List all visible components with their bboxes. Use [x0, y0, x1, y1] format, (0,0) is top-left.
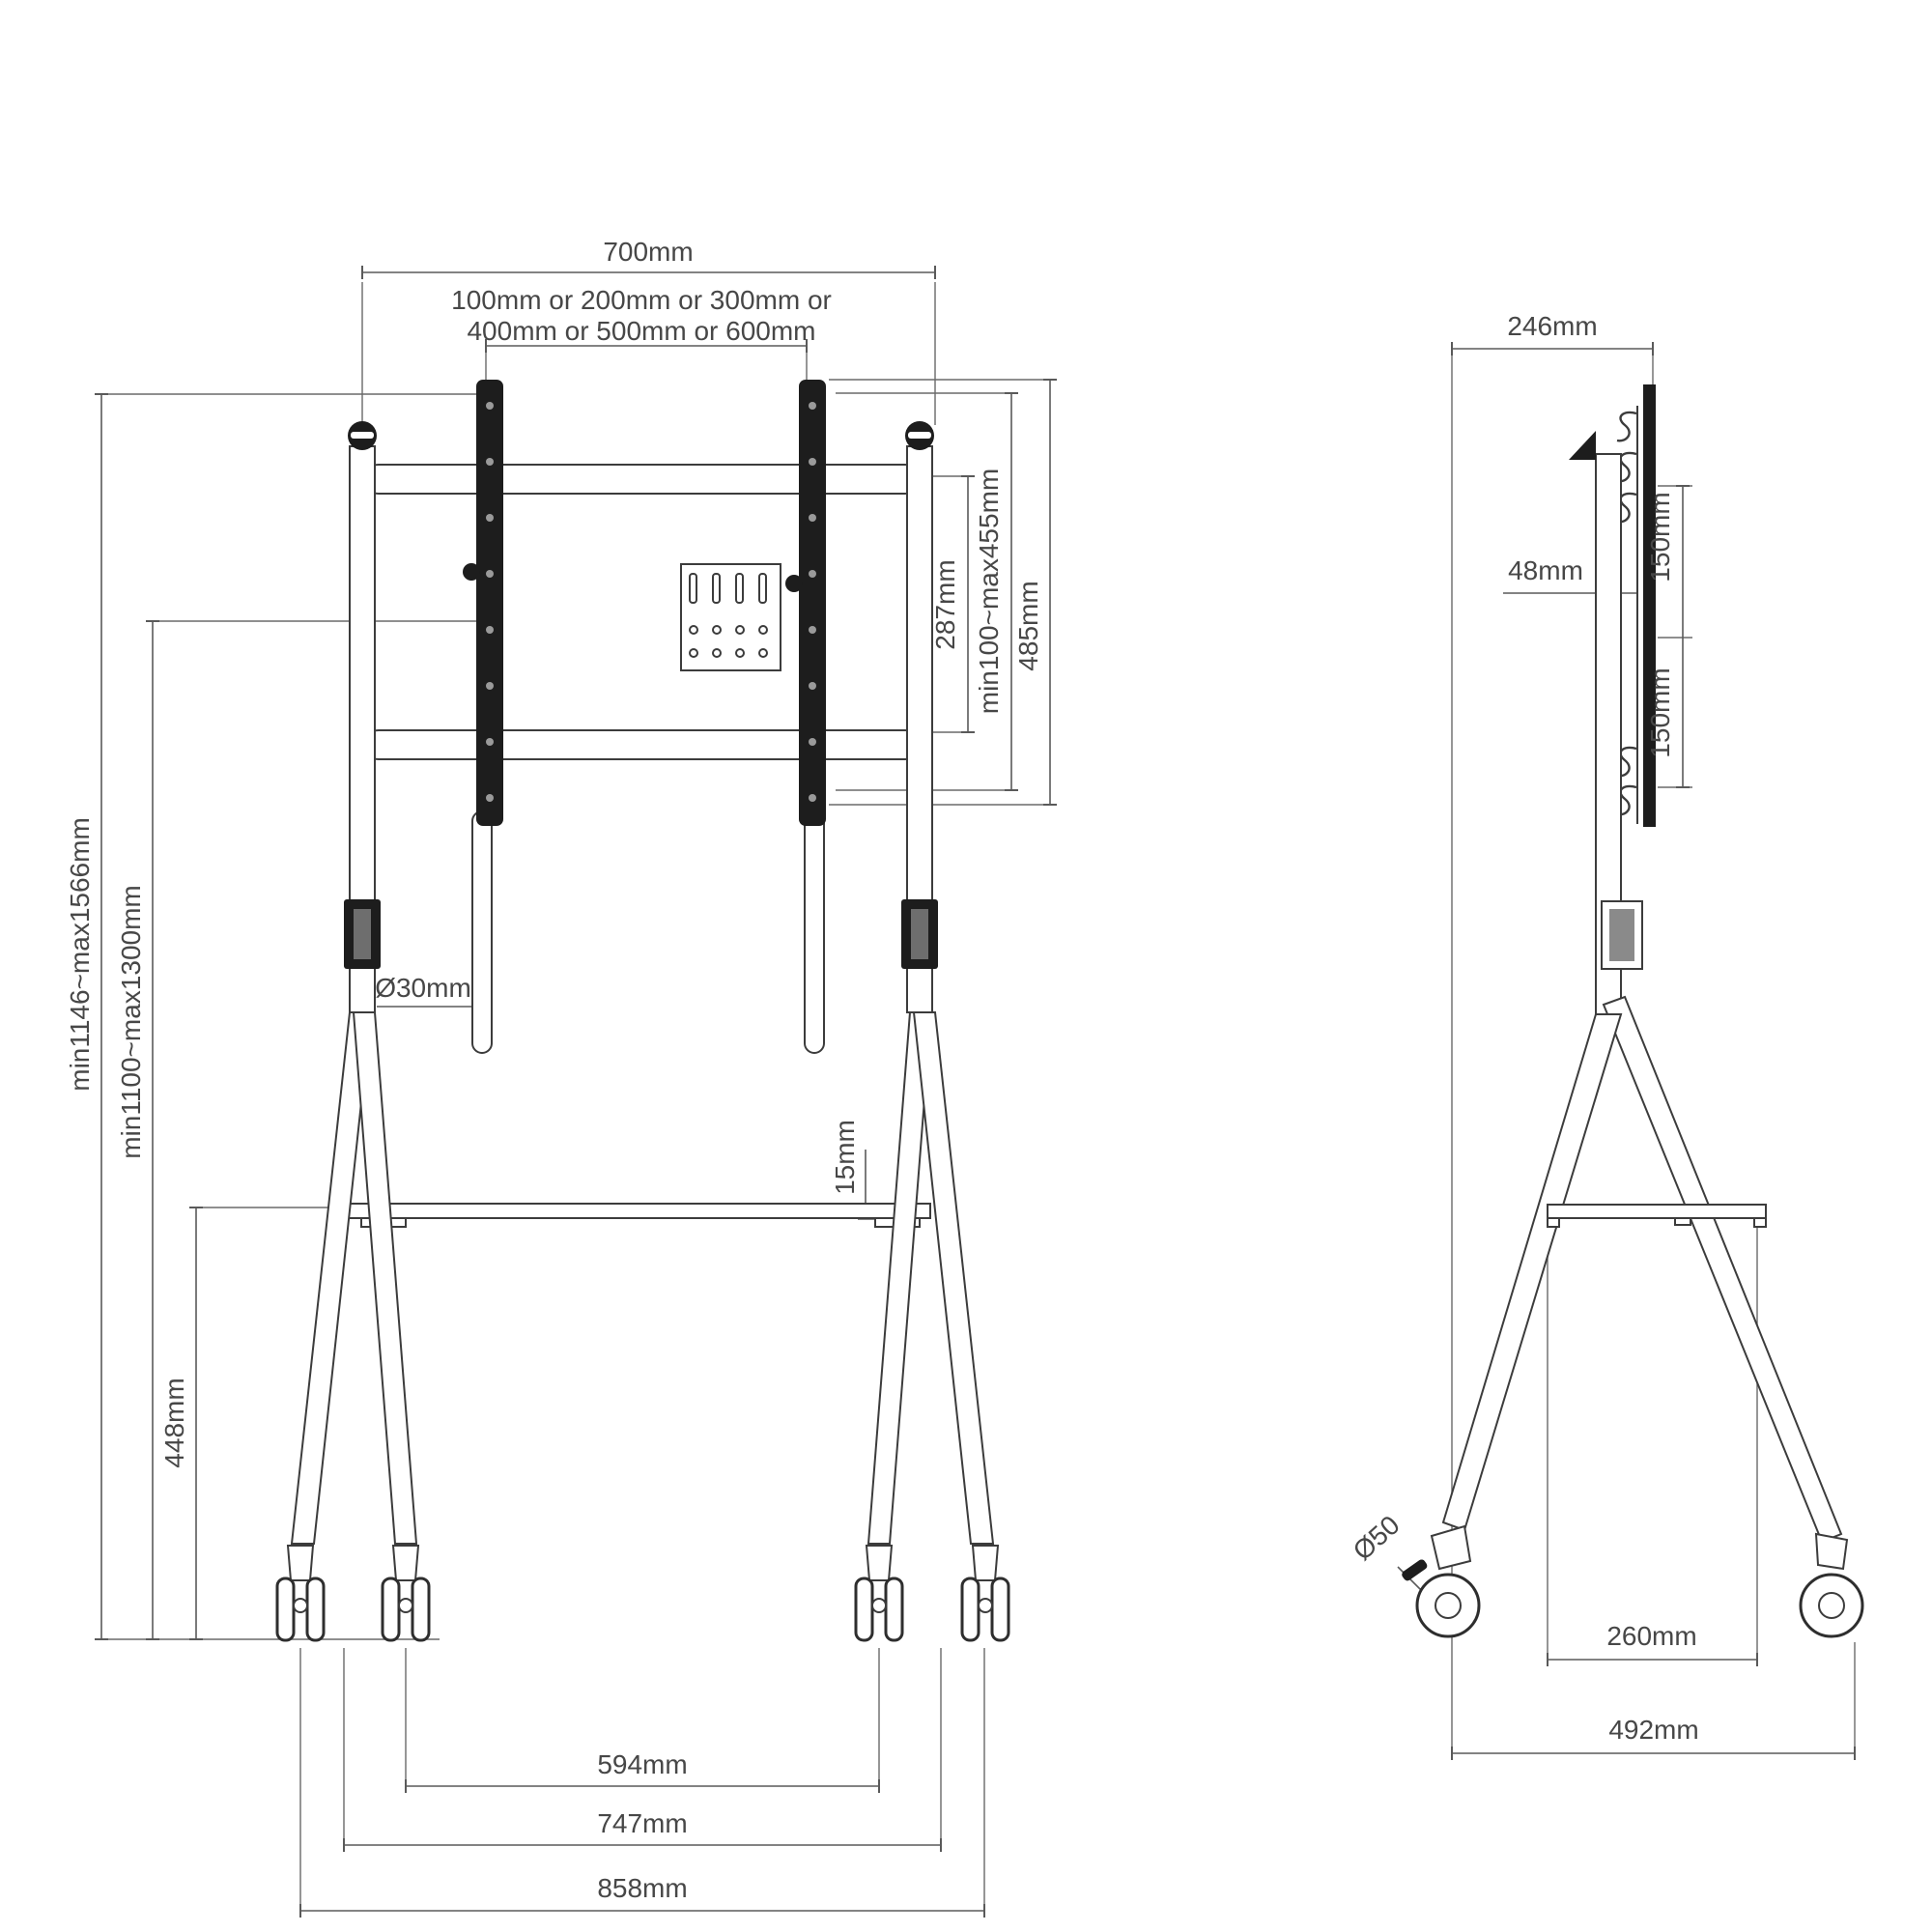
dim-label-min1146-max1566mm: min1146~max1566mm — [65, 817, 95, 1092]
side-view: 246mm 48mm 150mm 150mm Ø50 260mm 492mm — [1348, 311, 1862, 1753]
dim-label-15mm: 15mm — [830, 1120, 860, 1195]
pole-cap-slot — [351, 432, 374, 439]
dim-label-pole-diameter: Ø30mm — [375, 973, 471, 1003]
mount-hook — [1617, 412, 1636, 440]
pole-sleeve-inner — [911, 909, 928, 959]
pole-sleeve-side-inner — [1609, 909, 1634, 961]
rail-extension-left — [472, 811, 492, 1053]
leg-front-right-outer — [914, 1012, 993, 1544]
shelf — [349, 1204, 930, 1227]
caster-side — [1801, 1534, 1862, 1636]
front-view: 700mm 100mm or 200mm or 300mm or 400mm o… — [65, 237, 1056, 1911]
caster — [383, 1546, 429, 1640]
dim-label-150mm-upper: 150mm — [1645, 492, 1675, 582]
caster — [962, 1546, 1009, 1640]
dim-label-vesa-options-1: 100mm or 200mm or 300mm or — [451, 285, 832, 315]
pole-sleeve-inner — [354, 909, 371, 959]
accessory-plate — [681, 564, 781, 670]
display-panel-side — [1617, 384, 1656, 827]
support-column-side — [1569, 431, 1642, 1026]
dim-label-858mm: 858mm — [597, 1873, 687, 1903]
dim-label-594mm: 594mm — [597, 1749, 687, 1779]
dim-label-747mm: 747mm — [597, 1808, 687, 1838]
left-pole — [344, 421, 381, 1012]
upper-crossbar — [364, 465, 920, 494]
rail-knob — [785, 575, 803, 592]
lower-crossbar — [364, 730, 920, 759]
leg-side-rear — [1604, 997, 1841, 1542]
dim-label-700mm: 700mm — [603, 237, 693, 267]
dim-label-246mm: 246mm — [1507, 311, 1597, 341]
stand-dimension-drawing: 700mm 100mm or 200mm or 300mm or 400mm o… — [0, 0, 1932, 1932]
dim-label-287mm: 287mm — [930, 559, 960, 649]
caster — [277, 1546, 324, 1640]
leg-side-front — [1443, 1014, 1621, 1530]
dim-label-min100-max455mm: min100~max455mm — [974, 469, 1004, 714]
dim-label-caster-diameter: Ø50 — [1348, 1510, 1406, 1566]
dim-label-150mm-lower: 150mm — [1645, 668, 1675, 757]
dim-label-448mm: 448mm — [159, 1378, 189, 1467]
pole-cap-slot — [908, 432, 931, 439]
dim-label-492mm: 492mm — [1608, 1715, 1698, 1745]
rail-extension-right — [805, 811, 824, 1053]
rail-knob — [463, 563, 480, 581]
diagram-canvas: 700mm 100mm or 200mm or 300mm or 400mm o… — [0, 0, 1932, 1932]
dim-label-260mm: 260mm — [1606, 1621, 1696, 1651]
dim-label-48mm: 48mm — [1508, 555, 1583, 585]
leg-front-left-inner — [354, 1012, 416, 1544]
caster-brake — [1401, 1558, 1429, 1582]
caster — [856, 1546, 902, 1640]
dim-label-485mm: 485mm — [1013, 581, 1043, 670]
dim-label-vesa-options-2: 400mm or 500mm or 600mm — [467, 316, 815, 346]
dim-label-min1100-max1300mm: min1100~max1300mm — [116, 885, 146, 1159]
right-pole — [901, 421, 938, 1012]
column-cap — [1569, 431, 1596, 460]
shelf-side — [1548, 1205, 1766, 1227]
